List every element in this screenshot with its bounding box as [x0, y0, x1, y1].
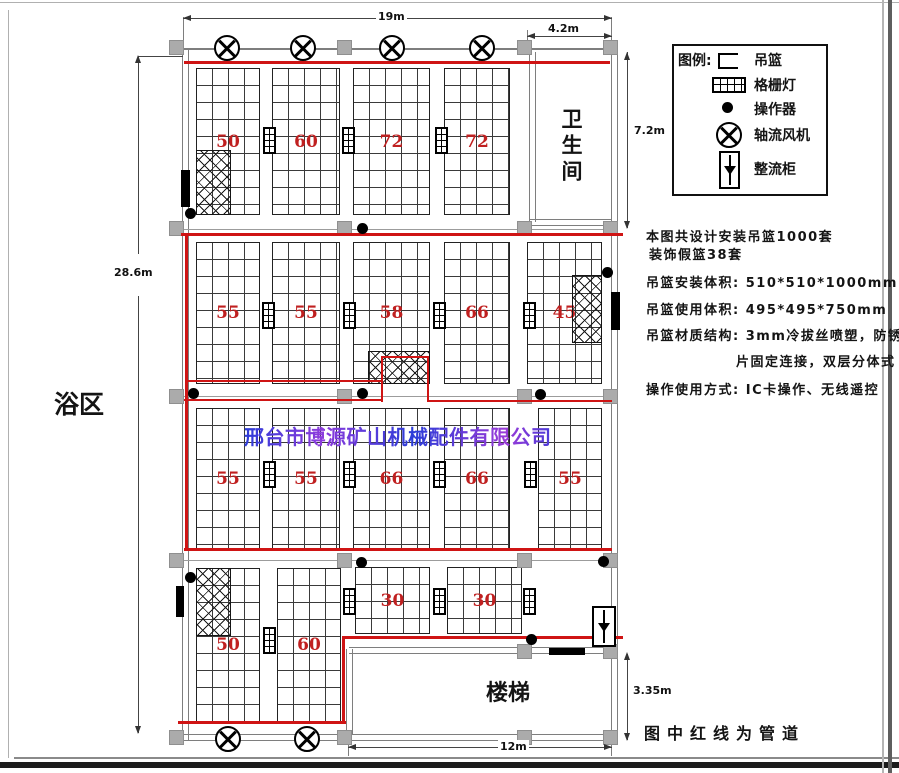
operator-box-icon — [602, 267, 613, 278]
sheet-border-top — [0, 2, 899, 3]
wall-bar — [611, 292, 620, 330]
pipe-note: 图中红线为管道 — [644, 720, 805, 744]
grille-light-icon — [433, 588, 446, 615]
note-use-volume: 吊篮使用体积: 495*495*750mm — [646, 299, 887, 318]
dim-line-7-2m — [627, 52, 628, 228]
column — [604, 41, 617, 54]
column — [338, 390, 351, 403]
arrow-down-icon — [624, 221, 630, 229]
sheet-border-right-dark — [888, 0, 892, 773]
grille-light-icon — [343, 302, 356, 329]
grille-light-icon — [435, 127, 448, 154]
axial-fan-icon — [294, 726, 320, 752]
column — [604, 731, 617, 744]
column — [338, 554, 351, 567]
grille-light-icon — [343, 461, 356, 488]
beam-line-3 — [183, 560, 611, 561]
dim-label-3-35m: 3.35m — [631, 684, 674, 697]
rack-row4b-2: 30 — [447, 567, 522, 634]
grille-light-icon — [433, 461, 446, 488]
legend-item-label: 格栅灯 — [754, 75, 796, 95]
wall-bar — [549, 648, 585, 655]
grille-light-icon — [523, 302, 536, 329]
dim-label-12m: 12m — [498, 740, 529, 753]
note-line-2: 装饰假篮38套 — [649, 244, 743, 263]
note-install-volume: 吊篮安装体积: 510*510*1000mm — [646, 272, 898, 291]
operator-box-icon — [722, 102, 733, 113]
dim-label-19m: 19m — [376, 10, 407, 23]
room-label-toilet: 卫生间 — [556, 108, 586, 186]
grille-light-icon — [524, 461, 537, 488]
dim-ext — [138, 56, 183, 57]
wall-bottom — [176, 734, 618, 735]
note-value: IC卡操作、无线遥控 — [746, 383, 879, 398]
arrow-up-icon — [135, 55, 141, 63]
grille-light-icon — [523, 588, 536, 615]
pipe-stairs-vertical — [342, 636, 345, 724]
operator-box-icon — [526, 634, 537, 645]
sheet-border-bottom-gray — [14, 757, 899, 759]
legend-item-label: 整流柜 — [754, 159, 796, 179]
arrow-right-icon — [604, 33, 612, 39]
sheet-border-right-light — [882, 0, 884, 773]
grille-light-icon — [342, 127, 355, 154]
rack-count: 55 — [294, 469, 318, 489]
room-label-stairs: 楼梯 — [486, 675, 530, 707]
rack-count: 58 — [380, 303, 404, 323]
operator-box-icon — [598, 556, 609, 567]
pipe-row2-bottom — [187, 380, 382, 382]
axial-fan-icon — [215, 726, 241, 752]
legend-box: 图例: 吊篮 格栅灯 操作器 轴流风机 整流柜 — [672, 44, 828, 196]
hatch-zone-row2-right — [572, 275, 602, 343]
note-value: 510*510*1000mm — [746, 276, 898, 291]
arrow-right-icon — [604, 15, 612, 21]
column — [170, 390, 183, 403]
note-label: 吊篮安装体积: — [646, 276, 740, 291]
basket-icon — [718, 53, 738, 69]
legend-item-label: 吊篮 — [754, 50, 782, 70]
arrow-right-icon — [604, 744, 612, 750]
note-value: 495*495*750mm — [746, 303, 888, 318]
pipe-detour-right — [427, 356, 429, 402]
pipe-detour-top — [381, 356, 429, 358]
operator-box-icon — [357, 388, 368, 399]
rack-row2-4: 66 — [444, 242, 510, 384]
grille-light-icon — [343, 588, 356, 615]
note-value: 3mm冷拔丝喷塑，防锈铆 — [746, 329, 899, 344]
arrow-left-icon — [348, 744, 356, 750]
pipe-bottom-left — [178, 721, 346, 724]
wall-bottom-inner — [176, 740, 618, 741]
axial-fan-icon — [469, 35, 495, 61]
wall-bar — [181, 170, 190, 207]
operator-box-icon — [185, 572, 196, 583]
pipe-detour-left — [381, 356, 383, 402]
rack-row1-3: 72 — [353, 68, 430, 215]
rack-row2-2: 55 — [272, 242, 340, 384]
arrow-down-icon — [624, 733, 630, 741]
operator-box-icon — [188, 388, 199, 399]
rack-count: 55 — [294, 303, 318, 323]
rack-count: 55 — [558, 469, 582, 489]
column — [170, 554, 183, 567]
column — [518, 554, 531, 567]
grille-light-icon — [263, 627, 276, 654]
rack-count: 72 — [465, 132, 489, 152]
grille-light-icon — [433, 302, 446, 329]
rack-count: 55 — [216, 469, 240, 489]
column — [170, 41, 183, 54]
dim-label-4-2m: 4.2m — [546, 22, 581, 35]
pipe-corridor-3 — [184, 548, 612, 551]
grille-light-icon — [263, 461, 276, 488]
pipe-stairs-top — [344, 636, 623, 639]
beam-line-1 — [183, 229, 611, 230]
rack-row1-2: 60 — [272, 68, 340, 215]
note-material: 吊篮材质结构: 3mm冷拔丝喷塑，防锈铆 — [646, 325, 899, 344]
note-label: 操作使用方式: — [646, 383, 740, 398]
dim-line-28-6m-a — [138, 57, 139, 254]
hatch-zone-row4 — [196, 568, 231, 636]
pipe-corridor-1 — [181, 233, 623, 236]
toilet-wall-bottom — [529, 219, 612, 220]
rack-count: 72 — [380, 132, 404, 152]
rack-count: 50 — [216, 132, 240, 152]
rack-count: 66 — [465, 469, 489, 489]
axial-fan-icon — [379, 35, 405, 61]
dim-label-7-2m: 7.2m — [632, 124, 667, 137]
legend-item-label: 轴流风机 — [754, 125, 810, 145]
rack-count: 66 — [465, 303, 489, 323]
column — [338, 731, 351, 744]
pipe-top — [184, 61, 610, 64]
toilet-wall-vertical-inner — [535, 52, 536, 222]
rack-count: 30 — [473, 591, 497, 611]
watermark: 邢台市博源矿山机械配件有限公司 — [244, 421, 552, 450]
grille-light-icon — [712, 77, 746, 93]
floor-plan-sheet: 50 60 72 72 55 55 58 66 45 55 55 66 66 5… — [0, 0, 899, 773]
rack-count: 66 — [380, 469, 404, 489]
legend-title: 图例: — [678, 50, 712, 70]
rack-count: 50 — [216, 635, 240, 655]
column — [338, 41, 351, 54]
column — [518, 41, 531, 54]
note-label: 吊篮使用体积: — [646, 303, 740, 318]
room-label-bath-area: 浴区 — [54, 385, 104, 421]
axial-fan-icon — [290, 35, 316, 61]
dim-line-3-35m — [627, 654, 628, 740]
arrow-left-icon — [527, 33, 535, 39]
pipe-corridor-2-left — [184, 399, 382, 401]
operator-box-icon — [185, 208, 196, 219]
rack-row4b-1: 30 — [355, 567, 430, 634]
dim-ext — [183, 17, 184, 49]
dim-label-28-6m: 28.6m — [112, 266, 155, 279]
sheet-border-bottom-black — [0, 762, 899, 768]
rack-count: 60 — [294, 132, 318, 152]
operator-box-icon — [357, 223, 368, 234]
arrow-down-icon — [135, 726, 141, 734]
beam-line-2 — [183, 396, 611, 397]
rack-row4-2: 60 — [277, 568, 341, 722]
column — [518, 645, 531, 658]
rack-count: 60 — [297, 635, 321, 655]
rectifier-cabinet-icon — [592, 606, 616, 647]
wall-bar — [176, 586, 184, 617]
operator-box-icon — [535, 389, 546, 400]
arrow-up-icon — [624, 652, 630, 660]
dim-line-28-6m-b — [138, 296, 139, 733]
rack-count: 55 — [216, 303, 240, 323]
rack-count: 30 — [381, 591, 405, 611]
pipe-corridor-2-right — [427, 400, 612, 402]
arrow-up-icon — [624, 52, 630, 60]
note-operation: 操作使用方式: IC卡操作、无线遥控 — [646, 379, 879, 398]
note-material-cont: 片固定连接，双层分体式 — [736, 351, 896, 370]
rectifier-cabinet-icon — [719, 151, 740, 189]
rack-row1-4: 72 — [444, 68, 510, 215]
note-line-1: 本图共设计安装吊篮1000套 — [646, 226, 833, 245]
sheet-border-left — [8, 10, 9, 758]
operator-box-icon — [356, 557, 367, 568]
stairs-wall-left — [346, 649, 347, 735]
column — [170, 731, 183, 744]
toilet-wall-bottom-inner — [529, 225, 612, 226]
dim-line-12m — [348, 747, 612, 748]
stairs-wall-left-inner — [352, 649, 353, 735]
arrow-left-icon — [183, 15, 191, 21]
hatch-zone-row1 — [196, 150, 231, 215]
note-label: 吊篮材质结构: — [646, 329, 740, 344]
rack-row2-1: 55 — [196, 242, 260, 384]
axial-fan-icon — [716, 122, 742, 148]
legend-item-label: 操作器 — [754, 99, 796, 119]
axial-fan-icon — [214, 35, 240, 61]
grille-light-icon — [263, 127, 276, 154]
toilet-wall-vertical — [529, 52, 530, 222]
grille-light-icon — [262, 302, 275, 329]
dim-line-4-2m — [527, 36, 612, 37]
